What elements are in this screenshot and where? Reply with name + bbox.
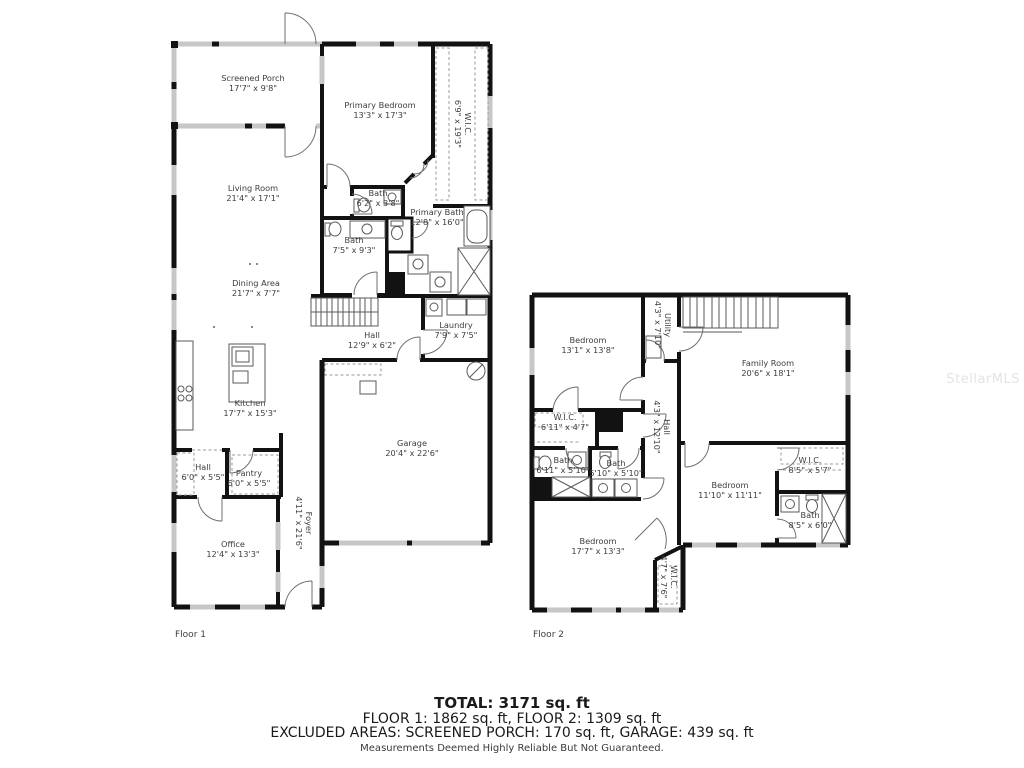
label-bath-c-floor2: Bath bbox=[800, 510, 819, 520]
label-hall-b-floor1: Hall bbox=[195, 462, 211, 472]
dims-bath-a-floor1: 6'2" x 3'8" bbox=[357, 198, 400, 208]
dims-wic-floor1: 6'9" x 19'3" bbox=[453, 100, 463, 148]
dims-hall-floor2: 4'3" x 12'10" bbox=[652, 400, 662, 453]
label-utility: Utility bbox=[663, 313, 673, 337]
label-foyer: Foyer bbox=[304, 512, 314, 535]
floor2-plan: Bedroom 13'1" x 13'8" Utility 4'3" x 7'1… bbox=[532, 295, 848, 640]
floor2-wall-block bbox=[533, 477, 552, 497]
label-primary-bath: Primary Bath bbox=[410, 207, 463, 217]
stellar-mls-watermark: StellarMLS bbox=[930, 372, 1020, 387]
floor2-tag: Floor 2 bbox=[533, 630, 564, 640]
label-pantry: Pantry bbox=[236, 468, 262, 478]
label-kitchen: Kitchen bbox=[235, 398, 266, 408]
label-bath-a-floor1: Bath bbox=[368, 188, 387, 198]
dims-kitchen: 17'7" x 15'3" bbox=[223, 408, 276, 418]
dims-office: 12'4" x 13'3" bbox=[206, 549, 259, 559]
label-bedroom-c: Bedroom bbox=[579, 536, 616, 546]
floor2-fixtures bbox=[534, 336, 846, 543]
label-screened-porch: Screened Porch bbox=[221, 73, 285, 83]
dims-bedroom-a: 13'1" x 13'8" bbox=[561, 345, 614, 355]
floor1-stairs bbox=[311, 298, 378, 326]
floor1-tag: Floor 1 bbox=[175, 630, 206, 640]
label-wic-floor1: W.I.C. bbox=[463, 112, 473, 135]
dims-hall-a-floor1: 12'9" x 6'2" bbox=[348, 340, 396, 350]
dims-bath-b-floor1: 7'5" x 9'3" bbox=[333, 245, 376, 255]
label-hall-floor2: Hall bbox=[662, 419, 672, 435]
label-wic-a-floor2: W.I.C. bbox=[553, 412, 576, 422]
label-bedroom-b: Bedroom bbox=[711, 480, 748, 490]
dims-bath-b-floor2: 5'10" x 5'10" bbox=[589, 468, 642, 478]
dims-bath-c-floor2: 8'5" x 6'0" bbox=[789, 520, 832, 530]
dims-screened-porch: 17'7" x 9'8" bbox=[229, 83, 277, 93]
dims-family-room: 20'6" x 18'1" bbox=[741, 368, 794, 378]
label-bath-b-floor1: Bath bbox=[344, 235, 363, 245]
floor2-wall-block bbox=[597, 410, 623, 432]
label-bedroom-a: Bedroom bbox=[569, 335, 606, 345]
floorplan-drawing: Screened Porch 17'7" x 9'8" Primary Bedr… bbox=[0, 0, 1024, 768]
dims-wic-b-floor2: 8'5" x 5'7" bbox=[789, 465, 832, 475]
porch-corner-post bbox=[171, 122, 178, 129]
dims-garage: 20'4" x 22'6" bbox=[385, 448, 438, 458]
summary-total: TOTAL: 3171 sq. ft bbox=[0, 694, 1024, 712]
dims-dining-area: 21'7" x 7'7" bbox=[232, 288, 280, 298]
label-office: Office bbox=[221, 539, 245, 549]
dims-wic-c-floor2: 4'7" x 7'6" bbox=[659, 556, 669, 599]
label-living-room: Living Room bbox=[228, 183, 278, 193]
label-bath-a-floor2: Bath bbox=[553, 455, 572, 465]
label-hall-a-floor1: Hall bbox=[364, 330, 380, 340]
dims-primary-bath: 12'8" x 16'0" bbox=[410, 217, 463, 227]
label-wic-c-floor2: W.I.C. bbox=[669, 565, 679, 588]
dims-laundry: 7'9" x 7'5" bbox=[435, 330, 478, 340]
dims-foyer: 4'11" x 21'6" bbox=[294, 496, 304, 549]
porch-corner-post bbox=[171, 41, 178, 48]
dims-wic-a-floor2: 6'11" x 4'7" bbox=[541, 422, 589, 432]
label-family-room: Family Room bbox=[742, 358, 794, 368]
dims-hall-b-floor1: 6'0" x 5'5" bbox=[182, 472, 225, 482]
label-garage: Garage bbox=[397, 438, 427, 448]
summary-disclaimer: Measurements Deemed Highly Reliable But … bbox=[0, 743, 1024, 754]
label-bath-b-floor2: Bath bbox=[606, 458, 625, 468]
dims-bedroom-c: 17'7" x 13'3" bbox=[571, 546, 624, 556]
dims-bedroom-b: 11'10" x 11'11" bbox=[698, 490, 762, 500]
label-wic-b-floor2: W.I.C. bbox=[798, 455, 821, 465]
floor1-wall-block bbox=[387, 272, 405, 295]
summary-excluded-areas: EXCLUDED AREAS: SCREENED PORCH: 170 sq. … bbox=[0, 725, 1024, 741]
dims-primary-bedroom: 13'3" x 17'3" bbox=[353, 110, 406, 120]
label-dining-area: Dining Area bbox=[232, 278, 280, 288]
dims-utility: 4'3" x 7'10" bbox=[653, 301, 663, 349]
label-primary-bedroom: Primary Bedroom bbox=[344, 100, 415, 110]
dims-bath-a-floor2: 6'11" x 5'10" bbox=[536, 465, 589, 475]
label-laundry: Laundry bbox=[439, 320, 473, 330]
dims-pantry: 6'0" x 5'5" bbox=[228, 478, 271, 488]
floorplan-page: Screened Porch 17'7" x 9'8" Primary Bedr… bbox=[0, 0, 1024, 768]
dims-living-room: 21'4" x 17'1" bbox=[226, 193, 279, 203]
floor1-plan: Screened Porch 17'7" x 9'8" Primary Bedr… bbox=[171, 13, 490, 640]
